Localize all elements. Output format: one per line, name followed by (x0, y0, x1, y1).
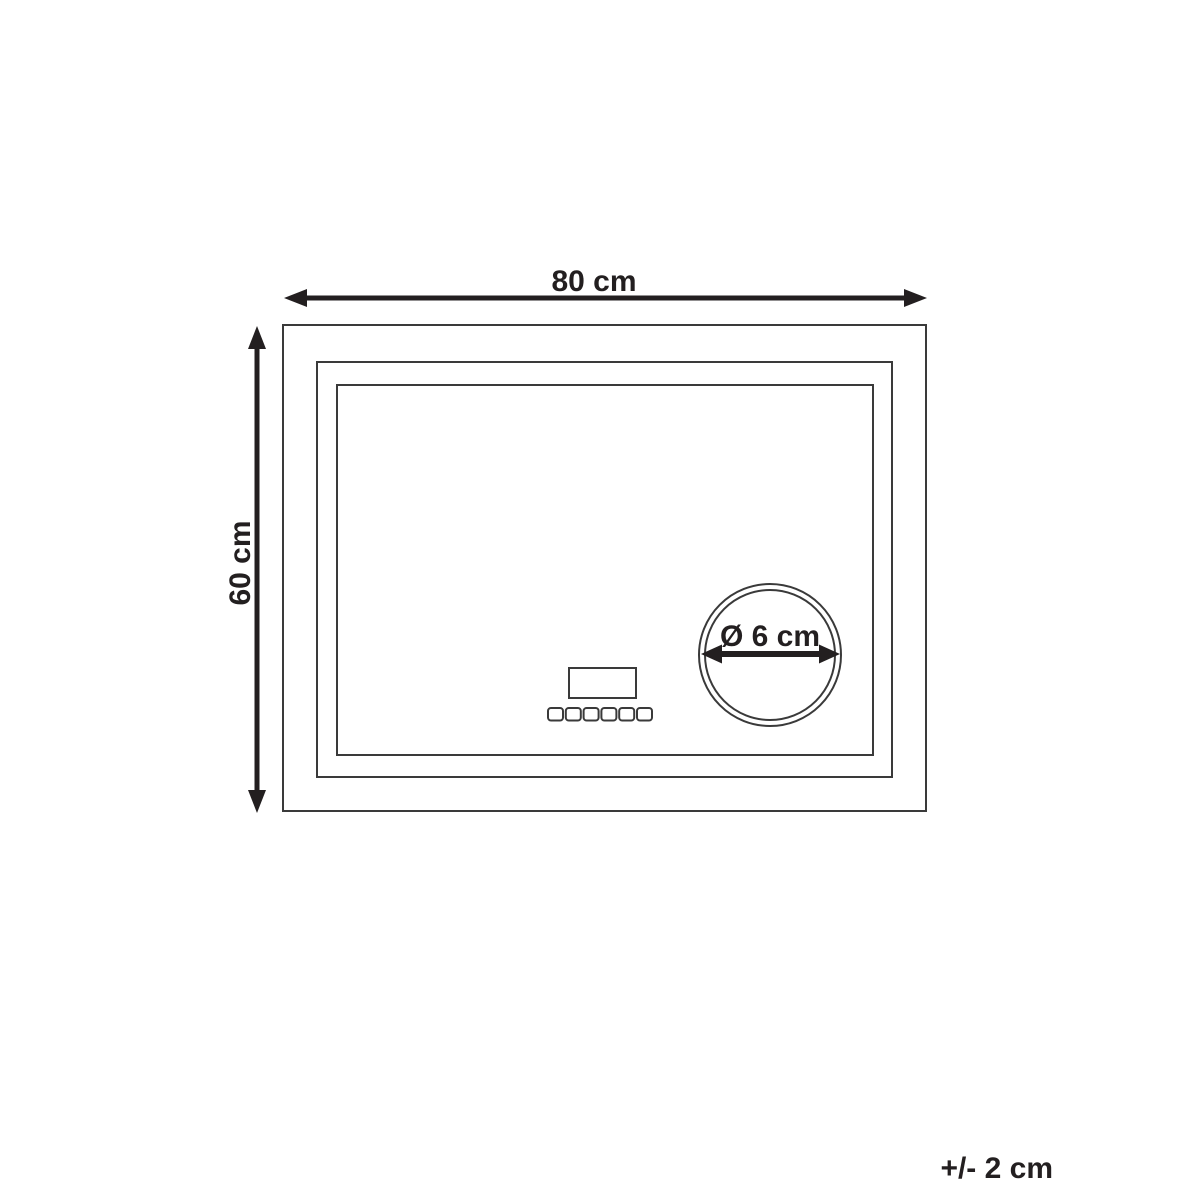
height-arrow-bottom-head-icon (248, 790, 266, 813)
width-dimension-arrow: 80 cm (284, 265, 927, 307)
diameter-arrow-right-head-icon (819, 645, 840, 664)
touch-button (548, 708, 563, 721)
touch-button (619, 708, 634, 721)
touch-button (601, 708, 616, 721)
tolerance-note: +/- 2 cm (940, 1152, 1053, 1185)
width-dimension-label: 80 cm (551, 265, 636, 298)
height-arrow-top-head-icon (248, 326, 266, 349)
diameter-arrow-left-head-icon (701, 645, 722, 664)
touch-button (637, 708, 652, 721)
diameter-dimension-label: Ø 6 cm (720, 620, 820, 653)
touch-buttons (548, 708, 652, 721)
magnifying-mirror: Ø 6 cm (699, 584, 841, 726)
mirror-mid-frame (317, 362, 892, 777)
touch-button (566, 708, 581, 721)
mirror-dimension-diagram-page: 80 cm 60 cm Ø 6 cm +/- (0, 0, 1200, 1200)
width-arrow-right-head-icon (904, 289, 927, 307)
led-display (569, 668, 636, 698)
touch-button (584, 708, 599, 721)
mirror-glass-edge (337, 385, 873, 755)
height-dimension-arrow: 60 cm (224, 326, 266, 813)
mirror-outer-frame (283, 325, 926, 811)
height-dimension-label: 60 cm (224, 520, 257, 605)
width-arrow-left-head-icon (284, 289, 307, 307)
mirror-dimension-diagram: 80 cm 60 cm Ø 6 cm +/- (0, 0, 1200, 1200)
